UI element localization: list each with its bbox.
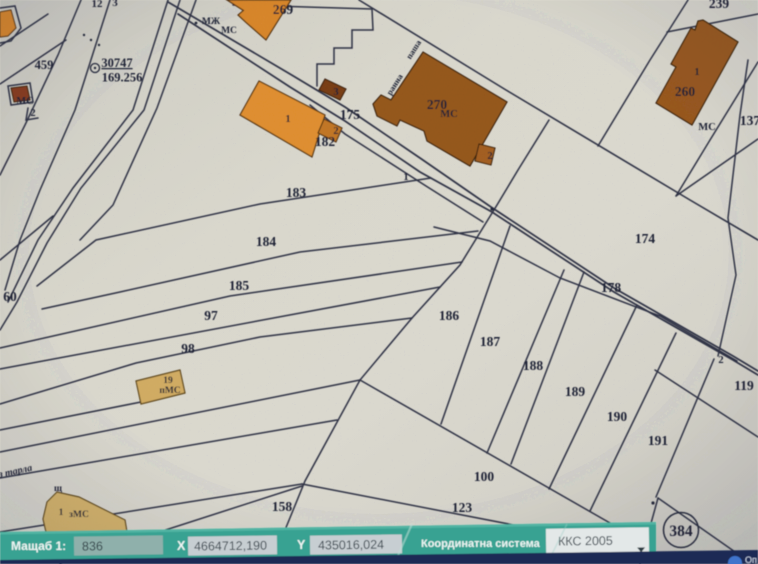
- svg-text:435016,024: 435016,024: [318, 538, 384, 553]
- svg-text:836: 836: [82, 539, 103, 553]
- svg-text:X: X: [177, 539, 186, 553]
- svg-text:4664712,190: 4664712,190: [194, 539, 267, 554]
- svg-text:Y: Y: [297, 538, 306, 552]
- svg-text:Мащаб 1:: Мащаб 1:: [11, 539, 66, 553]
- svg-text:Координатна система: Координатна система: [421, 538, 541, 550]
- svg-text:Оп: Оп: [745, 555, 757, 564]
- svg-text:ККС 2005: ККС 2005: [558, 534, 613, 549]
